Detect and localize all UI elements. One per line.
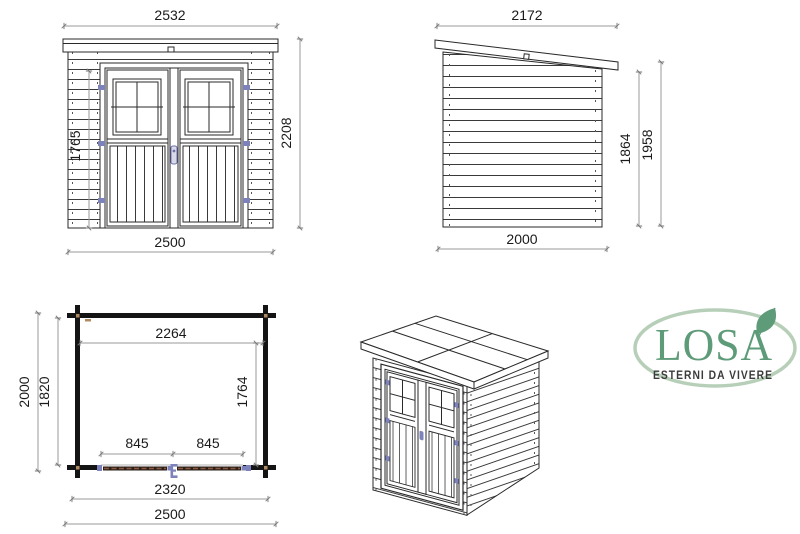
dim-plan-outer-width: 2500	[154, 506, 185, 522]
losa-logo: LOSA ESTERNI DA VIVERE	[635, 308, 795, 386]
plan-wall-left	[75, 305, 80, 478]
perspective-3d-view	[361, 316, 548, 515]
plan-wall-bottom-left	[67, 465, 101, 470]
dim-front-door-height: 1765	[67, 130, 83, 161]
front-double-door	[98, 63, 250, 228]
front-elevation-view: 2532 2500 2208 1765	[63, 7, 300, 252]
plan-wall-top	[67, 313, 276, 318]
plan-wall-right	[263, 305, 268, 478]
dim-front-width-bottom: 2500	[154, 234, 185, 250]
side-wall	[443, 52, 602, 227]
perspective-door-slats-left	[390, 421, 415, 488]
door-slats-right	[183, 146, 238, 222]
perspective-door-handle	[420, 431, 424, 441]
dim-front-width-top: 2532	[154, 7, 185, 23]
dim-plan-door-half-right: 845	[196, 435, 220, 451]
logo-tagline-text: ESTERNI DA VIVERE	[653, 368, 773, 382]
dim-plan-inner-depth: 1820	[36, 376, 52, 407]
door-slats-left	[110, 146, 165, 222]
side-elevation-view: 2172 2000 1864 1958	[435, 7, 661, 249]
dim-side-wall-height: 1864	[617, 133, 633, 164]
roof-notch	[524, 54, 529, 59]
floor-plan-view: 2264 2000 1820 1764 845 845 2320 2500	[16, 305, 276, 524]
dim-plan-base-width: 2320	[154, 481, 185, 497]
plan-door-opening	[97, 464, 251, 478]
dim-side-width-top: 2172	[511, 7, 542, 23]
door-handle	[171, 146, 177, 164]
dim-plan-door-half-left: 845	[125, 435, 149, 451]
dim-plan-inner-width: 2264	[155, 325, 186, 341]
dim-plan-outer-depth: 2000	[16, 376, 32, 407]
dim-side-total-height: 1958	[639, 129, 655, 160]
perspective-door-slats-right	[429, 431, 454, 498]
dim-plan-door-to-wall: 1764	[234, 376, 250, 407]
front-roof-fascia	[63, 39, 278, 52]
plan-dimensions: 2264 2000 1820 1764 845 845 2320 2500	[16, 313, 276, 524]
plan-door-handle	[171, 464, 178, 478]
dim-front-height-total: 2208	[278, 117, 294, 148]
dim-side-width-bottom: 2000	[506, 231, 537, 247]
technical-drawing-sheet: 2532 2500 2208 1765 2172 2000 1864 1958	[0, 0, 800, 534]
shed-technical-drawing: 2532 2500 2208 1765 2172 2000 1864 1958	[0, 0, 800, 534]
roof-notch	[168, 47, 174, 52]
logo-brand-text: LOSA	[655, 319, 773, 370]
